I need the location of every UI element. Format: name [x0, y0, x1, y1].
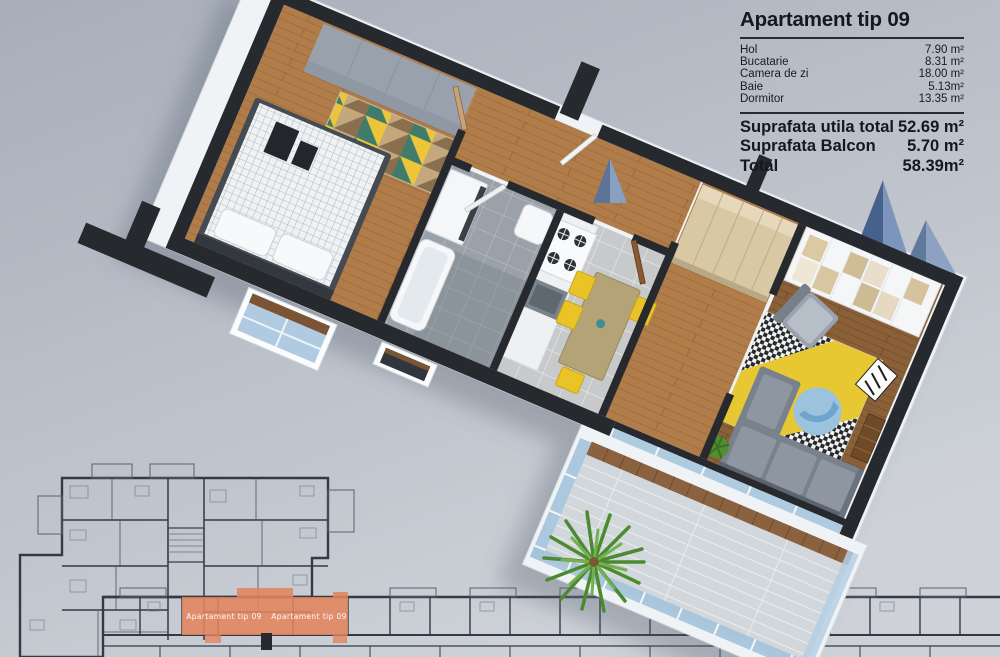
total-row: Total 58.39m²: [740, 157, 964, 177]
room-label: Camera de zi: [740, 68, 808, 80]
room-value: 7.90 m²: [925, 44, 964, 56]
room-label: Baie: [740, 81, 763, 93]
area-row: Hol 7.90 m²: [740, 44, 964, 56]
party-wall-mark: [261, 633, 272, 650]
room-label: Bucatarie: [740, 56, 789, 68]
total-value: 58.39m²: [903, 157, 964, 177]
highlight-unit-bump: [237, 588, 293, 597]
total-label: Suprafata Balcon: [740, 137, 876, 157]
total-row: Suprafata Balcon 5.70 m²: [740, 137, 964, 157]
area-row: Baie 5.13m²: [740, 81, 964, 93]
unit-label-1: Apartament tip 09: [186, 612, 262, 621]
info-panel: Apartament tip 09 Hol 7.90 m² Bucatarie …: [740, 8, 964, 176]
total-value: 5.70 m²: [907, 137, 964, 157]
room-value: 5.13m²: [928, 81, 964, 93]
area-row: Dormitor 13.35 m²: [740, 93, 964, 105]
unit-label-2: Apartament tip 09: [271, 612, 347, 621]
totals-table: Suprafata utila total 52.69 m² Suprafata…: [740, 112, 964, 177]
highlight-unit-bump-2: [333, 592, 348, 597]
page-title: Apartament tip 09: [740, 8, 964, 39]
total-label: Suprafata utila total: [740, 118, 894, 138]
room-value: 8.31 m²: [925, 56, 964, 68]
total-row: Suprafata utila total 52.69 m²: [740, 118, 964, 138]
floorplan-scene: Apartament tip 09 Apartament tip 09: [0, 0, 1000, 657]
highlight-unit-tab-2: [333, 635, 347, 643]
room-label: Hol: [740, 44, 757, 56]
room-value: 18.00 m²: [919, 68, 964, 80]
room-value: 13.35 m²: [919, 93, 964, 105]
area-row: Camera de zi 18.00 m²: [740, 68, 964, 80]
total-label: Total: [740, 157, 778, 177]
highlight-unit-tab-1: [205, 635, 221, 643]
room-label: Dormitor: [740, 93, 784, 105]
total-value: 52.69 m²: [898, 118, 964, 138]
palm-trunk: [589, 557, 599, 567]
area-table: Hol 7.90 m² Bucatarie 8.31 m² Camera de …: [740, 44, 964, 106]
area-row: Bucatarie 8.31 m²: [740, 56, 964, 68]
